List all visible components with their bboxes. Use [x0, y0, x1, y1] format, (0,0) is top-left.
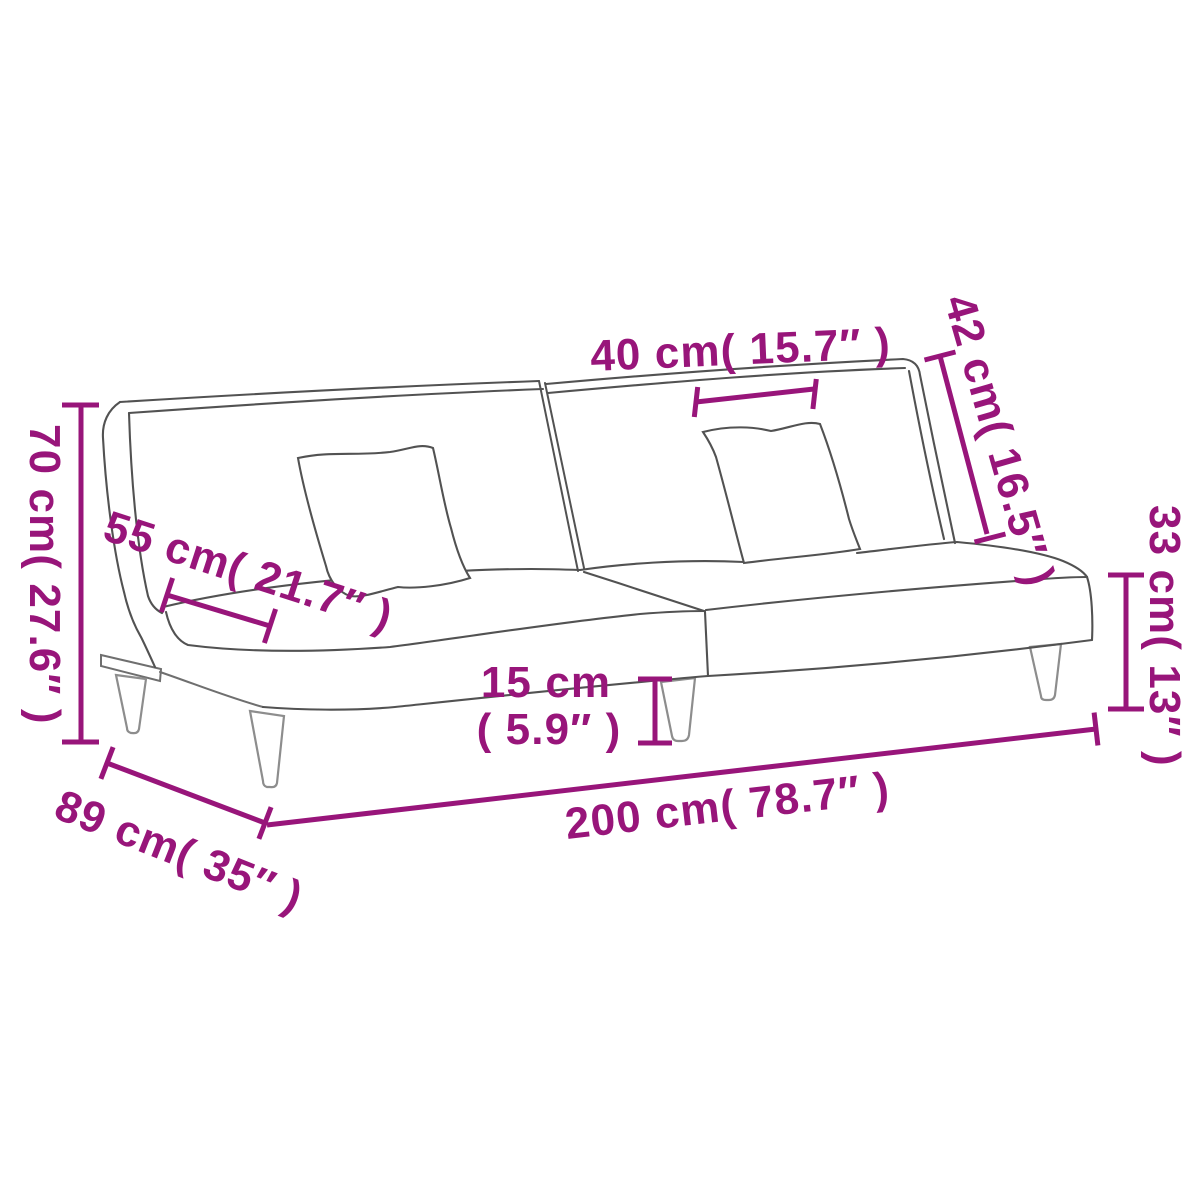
svg-text:33 cm( 13″ ): 33 cm( 13″ ) [1140, 505, 1189, 767]
svg-text:70 cm( 27.6″ ): 70 cm( 27.6″ ) [20, 424, 69, 725]
svg-text:( 5.9″ ): ( 5.9″ ) [477, 705, 622, 754]
svg-text:15 cm: 15 cm [481, 658, 611, 707]
